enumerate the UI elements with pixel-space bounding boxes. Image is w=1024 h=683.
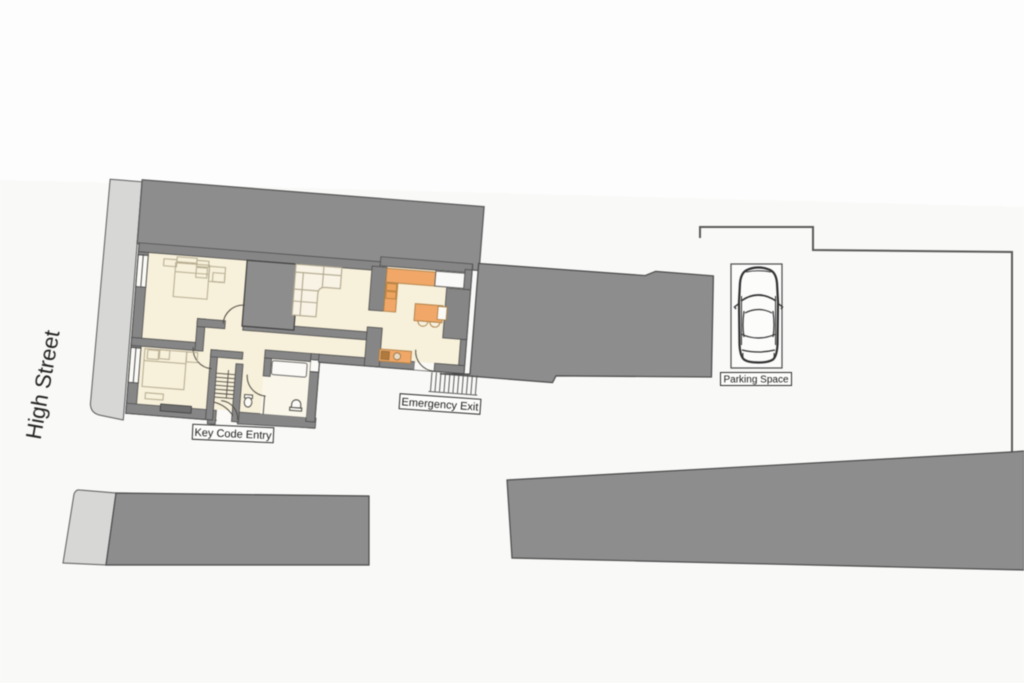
svg-text:Parking Space: Parking Space xyxy=(723,375,788,386)
